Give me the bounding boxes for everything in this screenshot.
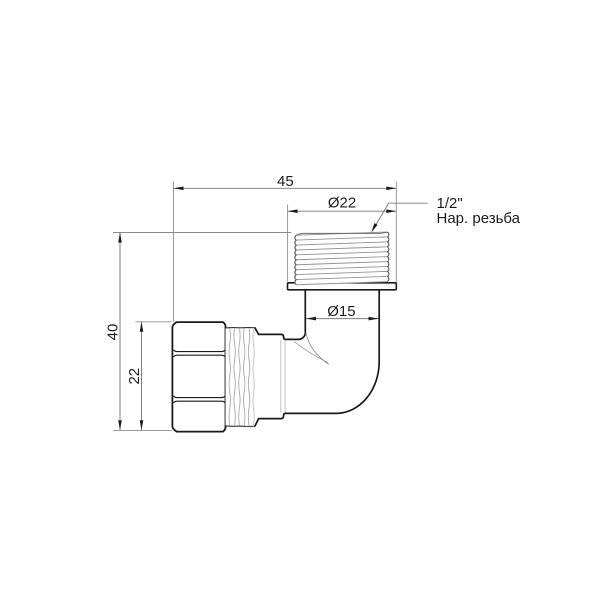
svg-text:Ø15: Ø15 <box>327 303 355 320</box>
svg-text:40: 40 <box>104 324 121 341</box>
svg-text:45: 45 <box>277 173 294 190</box>
svg-text:Нар. резьба: Нар. резьба <box>437 210 521 227</box>
svg-text:22: 22 <box>126 368 143 385</box>
svg-text:Ø22: Ø22 <box>328 195 356 212</box>
